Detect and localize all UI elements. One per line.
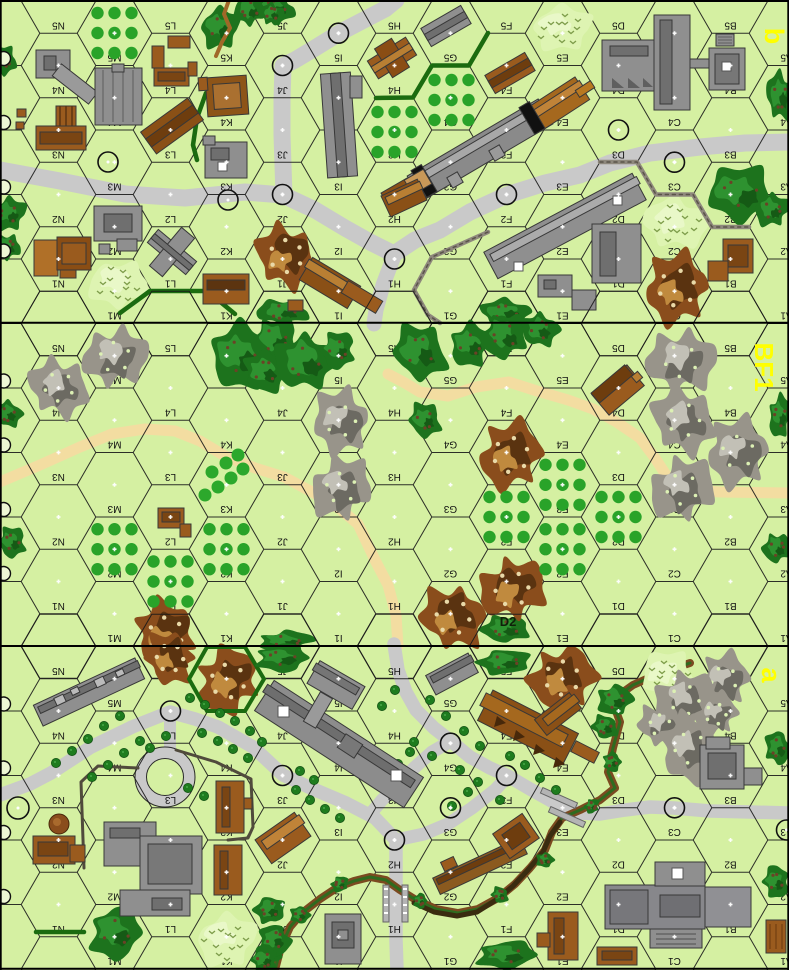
svg-text:N5: N5 [52,665,65,676]
svg-text:I2: I2 [334,245,343,256]
svg-text:K1: K1 [220,632,233,643]
svg-text:D1: D1 [612,600,625,611]
svg-text:G2: G2 [443,568,457,579]
svg-text:G3: G3 [443,826,457,837]
svg-text:L3: L3 [165,148,177,159]
svg-text:H1: H1 [388,923,401,934]
svg-text:F5: F5 [500,19,512,30]
svg-text:E4: E4 [556,439,569,450]
svg-text:H4: H4 [388,84,401,95]
svg-text:H1: H1 [388,277,401,288]
svg-text:E2: E2 [556,891,569,902]
svg-text:N3: N3 [52,471,65,482]
svg-text:E5: E5 [556,374,569,385]
svg-text:B1: B1 [724,600,737,611]
svg-text:B2: B2 [724,858,737,869]
svg-text:H2: H2 [388,535,401,546]
svg-text:H2: H2 [388,858,401,869]
svg-text:D2: D2 [612,858,625,869]
svg-text:N5: N5 [52,342,65,353]
svg-text:G5: G5 [443,374,457,385]
svg-text:B3: B3 [724,794,737,805]
svg-text:B5: B5 [724,342,737,353]
svg-text:M1: M1 [107,632,121,643]
svg-text:L5: L5 [165,19,177,30]
svg-text:L5: L5 [165,342,177,353]
svg-text:D3: D3 [612,794,625,805]
svg-text:H5: H5 [388,19,401,30]
svg-text:N4: N4 [52,84,65,95]
svg-text:L3: L3 [165,794,177,805]
svg-text:L1: L1 [165,923,177,934]
svg-text:B4: B4 [724,406,737,417]
svg-text:G3: G3 [443,503,457,514]
svg-text:I3: I3 [334,826,343,837]
svg-text:J2: J2 [277,535,288,546]
svg-text:H3: H3 [388,471,401,482]
svg-text:D5: D5 [612,665,625,676]
svg-text:I5: I5 [334,52,343,63]
svg-text:G4: G4 [443,439,457,450]
svg-text:E5: E5 [556,52,569,63]
svg-text:C2: C2 [668,568,681,579]
svg-text:J3: J3 [277,471,288,482]
svg-text:b: b [759,28,789,45]
svg-text:C3: C3 [668,826,681,837]
svg-text:N1: N1 [52,277,65,288]
svg-text:C1: C1 [668,955,681,966]
svg-text:B3: B3 [724,148,737,159]
svg-text:H4: H4 [388,729,401,740]
svg-text:BF1: BF1 [749,342,779,391]
svg-text:E1: E1 [556,632,569,643]
svg-text:F1: F1 [500,923,512,934]
svg-text:H1: H1 [388,600,401,611]
svg-text:J4: J4 [277,406,288,417]
svg-text:E3: E3 [556,181,569,192]
svg-text:B5: B5 [724,19,737,30]
svg-text:L2: L2 [165,535,177,546]
svg-text:N4: N4 [52,729,65,740]
svg-text:D3: D3 [612,471,625,482]
svg-text:N3: N3 [52,794,65,805]
svg-text:G5: G5 [443,52,457,63]
svg-text:K3: K3 [220,503,233,514]
svg-text:K4: K4 [220,439,233,450]
svg-text:F2: F2 [500,213,512,224]
svg-text:D2: D2 [500,614,517,629]
svg-text:H4: H4 [388,406,401,417]
svg-text:J3: J3 [277,148,288,159]
svg-text:D3: D3 [612,148,625,159]
svg-text:N2: N2 [52,213,65,224]
svg-text:K5: K5 [220,52,233,63]
svg-text:C3: C3 [668,181,681,192]
svg-text:C1: C1 [668,632,681,643]
svg-text:M3: M3 [107,503,121,514]
svg-text:D5: D5 [612,19,625,30]
svg-text:L2: L2 [165,213,177,224]
svg-text:C4: C4 [668,116,681,127]
svg-text:a: a [756,667,786,683]
svg-text:J2: J2 [277,858,288,869]
svg-text:M5: M5 [107,697,121,708]
svg-text:K4: K4 [220,116,233,127]
svg-text:I3: I3 [334,181,343,192]
svg-text:I1: I1 [334,310,343,321]
svg-text:I2: I2 [334,568,343,579]
svg-text:M2: M2 [107,891,121,902]
svg-text:L4: L4 [165,406,177,417]
svg-text:N2: N2 [52,535,65,546]
svg-text:N5: N5 [52,19,65,30]
svg-text:K2: K2 [220,245,233,256]
svg-text:I5: I5 [334,374,343,385]
svg-text:H5: H5 [388,665,401,676]
svg-text:G5: G5 [443,697,457,708]
svg-text:F4: F4 [500,406,512,417]
svg-text:I1: I1 [334,632,343,643]
svg-text:M3: M3 [107,181,121,192]
svg-text:B2: B2 [724,535,737,546]
svg-text:M4: M4 [107,439,121,450]
svg-text:N1: N1 [52,600,65,611]
svg-text:G1: G1 [443,955,457,966]
svg-text:L1: L1 [165,277,177,288]
svg-text:G1: G1 [443,310,457,321]
svg-text:J1: J1 [277,600,288,611]
svg-text:D5: D5 [612,342,625,353]
svg-text:F1: F1 [500,277,512,288]
svg-text:J3: J3 [277,794,288,805]
svg-text:J4: J4 [277,84,288,95]
svg-text:L3: L3 [165,471,177,482]
svg-text:E1: E1 [556,310,569,321]
